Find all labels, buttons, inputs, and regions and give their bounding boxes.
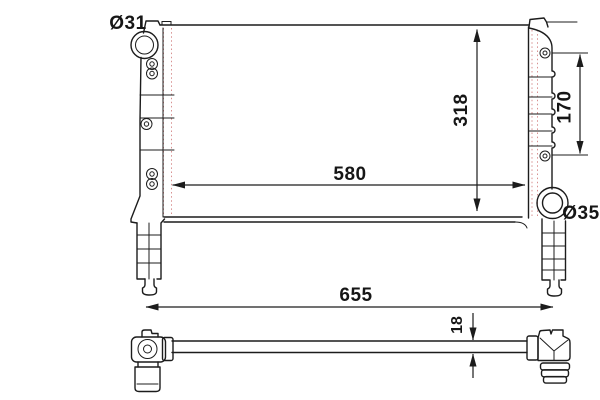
right-tank-outline bbox=[529, 28, 555, 189]
screw-boss-center bbox=[543, 51, 547, 55]
dim-core-depth: 18 bbox=[449, 313, 473, 378]
dim-label-318: 318 bbox=[451, 93, 472, 126]
dim-overall-length: 655 bbox=[146, 285, 553, 307]
inlet-fitting-bore bbox=[138, 340, 157, 359]
screw-boss-center bbox=[150, 62, 154, 66]
construction-lines bbox=[164, 28, 538, 216]
outlet-fitting-detail bbox=[540, 338, 568, 360]
left-foot-pin bbox=[143, 279, 157, 295]
screw-boss-center bbox=[150, 172, 154, 176]
left-tank bbox=[131, 21, 174, 295]
dim-bracket-spacing: 170 bbox=[552, 53, 588, 155]
radiator-technical-drawing: 318 170 580 655 Ø31 Ø35 bbox=[0, 0, 600, 400]
dim-label-580: 580 bbox=[333, 164, 366, 185]
right-tank bbox=[529, 18, 578, 296]
inlet-fitting-side bbox=[132, 330, 174, 392]
outlet-fitting-flange bbox=[527, 336, 538, 360]
outlet-pipe-rib bbox=[544, 377, 567, 384]
inlet-diameter-label: Ø31 bbox=[109, 13, 146, 34]
dim-label-18: 18 bbox=[449, 316, 466, 334]
screw-boss-center bbox=[543, 154, 547, 158]
screw-boss-center bbox=[150, 182, 154, 186]
inlet-fitting-bore-center bbox=[144, 345, 152, 353]
side-boss bbox=[141, 119, 152, 130]
front-view: 318 170 580 655 Ø31 Ø35 bbox=[109, 13, 599, 307]
dim-core-width: 580 bbox=[173, 164, 526, 185]
side-view: 18 bbox=[132, 313, 571, 392]
inlet-port-inner bbox=[136, 36, 154, 54]
right-bracket-tab bbox=[529, 18, 548, 27]
dim-label-655: 655 bbox=[339, 285, 372, 306]
screw-boss bbox=[540, 151, 550, 161]
dim-core-height: 318 bbox=[451, 30, 477, 212]
radiator-core bbox=[160, 22, 529, 229]
outlet-fitting-side bbox=[527, 330, 570, 383]
screw-boss bbox=[147, 169, 158, 180]
left-tank-outline bbox=[131, 58, 141, 224]
right-foot-pin bbox=[548, 280, 562, 296]
drawing-canvas: 318 170 580 655 Ø31 Ø35 bbox=[0, 0, 600, 400]
side-boss-center bbox=[144, 122, 148, 126]
inlet-fitting-neck bbox=[138, 362, 158, 367]
core-bottom-notch bbox=[515, 222, 527, 228]
screw-boss bbox=[147, 179, 158, 190]
screw-boss bbox=[540, 48, 550, 58]
outlet-pipe-rib bbox=[542, 370, 569, 377]
inlet-fitting-block bbox=[135, 367, 160, 392]
inlet-fitting-tab bbox=[142, 330, 158, 337]
outlet-pipe-rib bbox=[541, 363, 570, 370]
outlet-port-inner bbox=[543, 193, 563, 213]
screw-boss-center bbox=[150, 71, 154, 75]
outlet-diameter-label: Ø35 bbox=[562, 203, 599, 224]
dim-label-170: 170 bbox=[555, 90, 576, 123]
